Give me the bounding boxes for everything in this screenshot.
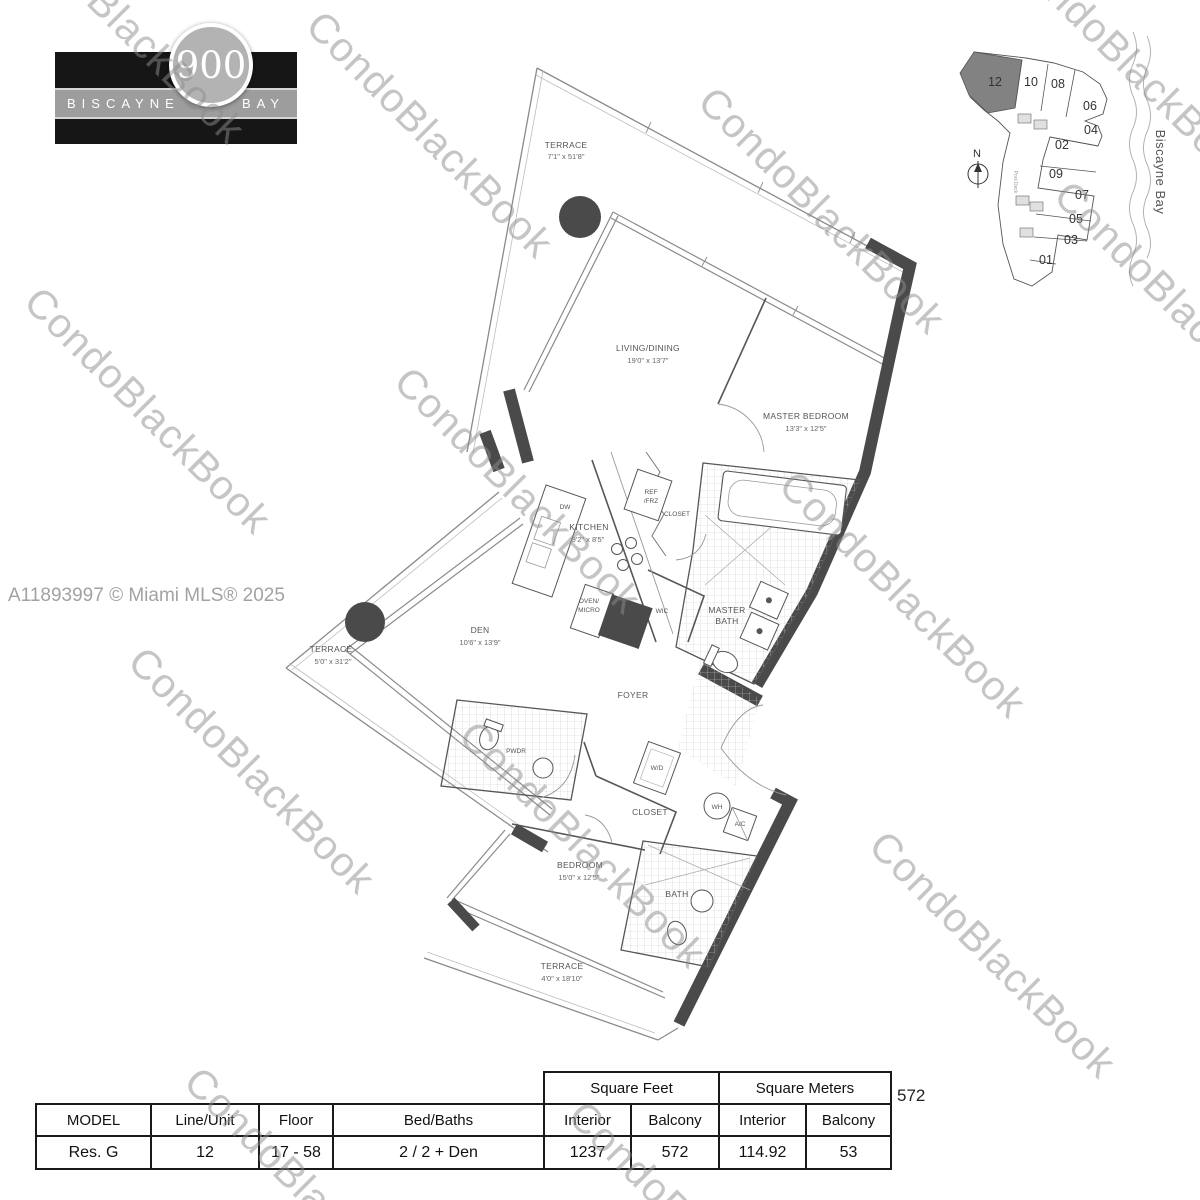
keyplan-unit-06: 06 <box>1083 99 1097 113</box>
keyplan-unit-12: 12 <box>988 75 1002 89</box>
keyplan-core <box>1016 114 1047 237</box>
room-label-master-bath-1: MASTER <box>708 605 745 615</box>
label-water-heater: WH <box>712 804 723 811</box>
keyplan-unit-08: 08 <box>1051 77 1065 91</box>
room-dims-terrace-top: 7'1" x 51'8" <box>548 152 585 161</box>
cell-floor: 17 - 58 <box>259 1136 333 1169</box>
room-label-terrace-bottom: TERRACE <box>541 961 584 971</box>
room-dims-living-dining: 19'0" x 13'7" <box>627 356 668 365</box>
bath-sink-icon <box>691 890 713 912</box>
room-label-terrace-mid: TERRACE <box>310 644 353 654</box>
label-micro: MICRO <box>578 607 600 614</box>
cell-bed-baths: 2 / 2 + Den <box>333 1136 544 1169</box>
keyplan-unit-02: 02 <box>1055 138 1069 152</box>
room-label-living-dining: LIVING/DINING <box>616 343 680 353</box>
compass-north-label: N <box>973 148 981 160</box>
label-ac: A/C <box>735 821 746 828</box>
header-square-feet: Square Feet <box>544 1072 719 1104</box>
powder-sink-icon <box>533 758 553 778</box>
room-label-den: DEN <box>471 625 490 635</box>
header-line-unit: Line/Unit <box>151 1104 259 1136</box>
keyplan-unit-07: 07 <box>1075 188 1089 202</box>
column-circle <box>559 196 601 238</box>
room-dims-den: 10'6" x 13'9" <box>459 638 500 647</box>
pool-deck-label: Pool Deck <box>1012 171 1018 194</box>
keyplan-unit-04: 04 <box>1084 123 1098 137</box>
key-plan: 12 10 08 06 04 02 09 07 05 03 01 N Pool … <box>960 32 1168 286</box>
floor-plan: TERRACE 7'1" x 51'8" LIVING/DINING 19'0"… <box>0 0 1200 1200</box>
header-sqft-balcony: Balcony <box>631 1104 719 1136</box>
keyplan-unit-10: 10 <box>1024 75 1038 89</box>
room-label-bath: BATH <box>665 889 688 899</box>
room-dims-kitchen: 9'2" x 8'5" <box>572 535 605 544</box>
label-oven: OVEN/ <box>579 598 599 605</box>
room-label-master-bedroom: MASTER BEDROOM <box>763 411 849 421</box>
keyplan-unit-03: 03 <box>1064 233 1078 247</box>
floorplan-page: BISCAYNE BAY 900 A11893997 © Miami MLS® … <box>0 0 1200 1200</box>
header-sqft-interior: Interior <box>544 1104 631 1136</box>
cell-sqft-balcony: 572 <box>631 1136 719 1169</box>
room-dims-terrace-mid: 5'0" x 31'2" <box>315 657 352 666</box>
bay-waves <box>1130 32 1151 286</box>
cell-sqft-interior: 1237 <box>544 1136 631 1169</box>
label-closet-upper: CLOSET <box>664 511 690 518</box>
label-ref: REF <box>645 489 658 496</box>
header-sqm-interior: Interior <box>719 1104 806 1136</box>
header-sqm-balcony: Balcony <box>806 1104 891 1136</box>
keyplan-unit-01: 01 <box>1039 253 1053 267</box>
spec-table: Square Feet Square Meters MODEL Line/Uni… <box>35 1071 892 1170</box>
room-label-terrace-top: TERRACE <box>545 140 588 150</box>
label-frz: /FRZ <box>644 498 658 505</box>
side-note-572: 572 <box>897 1086 925 1106</box>
header-bed-baths: Bed/Baths <box>333 1104 544 1136</box>
biscayne-bay-label: Biscayne Bay <box>1153 130 1168 215</box>
column-circle <box>345 602 385 642</box>
keyplan-unit-09: 09 <box>1049 167 1063 181</box>
cell-sqm-balcony: 53 <box>806 1136 891 1169</box>
room-label-kitchen: KITCHEN <box>569 522 608 532</box>
room-label-foyer: FOYER <box>618 690 649 700</box>
header-model: MODEL <box>36 1104 151 1136</box>
room-dims-master-bedroom: 13'3" x 12'5" <box>785 424 826 433</box>
room-label-pwdr: PWDR <box>506 748 526 755</box>
room-label-master-bath-2: BATH <box>715 616 738 626</box>
table-row: Res. G 12 17 - 58 2 / 2 + Den 1237 572 1… <box>36 1136 891 1169</box>
cell-sqm-interior: 114.92 <box>719 1136 806 1169</box>
header-square-meters: Square Meters <box>719 1072 891 1104</box>
cell-model: Res. G <box>36 1136 151 1169</box>
compass: N <box>968 148 988 188</box>
room-dims-bedroom: 15'0" x 12'5" <box>558 873 599 882</box>
stove-burners-icon <box>612 538 643 571</box>
table-spacer <box>36 1072 544 1104</box>
keyplan-unit-05: 05 <box>1069 212 1083 226</box>
label-wic: WIC <box>656 608 669 615</box>
room-label-bedroom: BEDROOM <box>557 860 603 870</box>
label-closet-lower: CLOSET <box>632 807 668 817</box>
label-dishwasher: DW <box>560 504 572 511</box>
room-dims-terrace-bottom: 4'0" x 18'10" <box>541 974 582 983</box>
cell-line-unit: 12 <box>151 1136 259 1169</box>
header-floor: Floor <box>259 1104 333 1136</box>
label-washer-dryer: W/D <box>651 765 664 772</box>
unit-spec-table: Square Feet Square Meters MODEL Line/Uni… <box>35 1071 892 1170</box>
